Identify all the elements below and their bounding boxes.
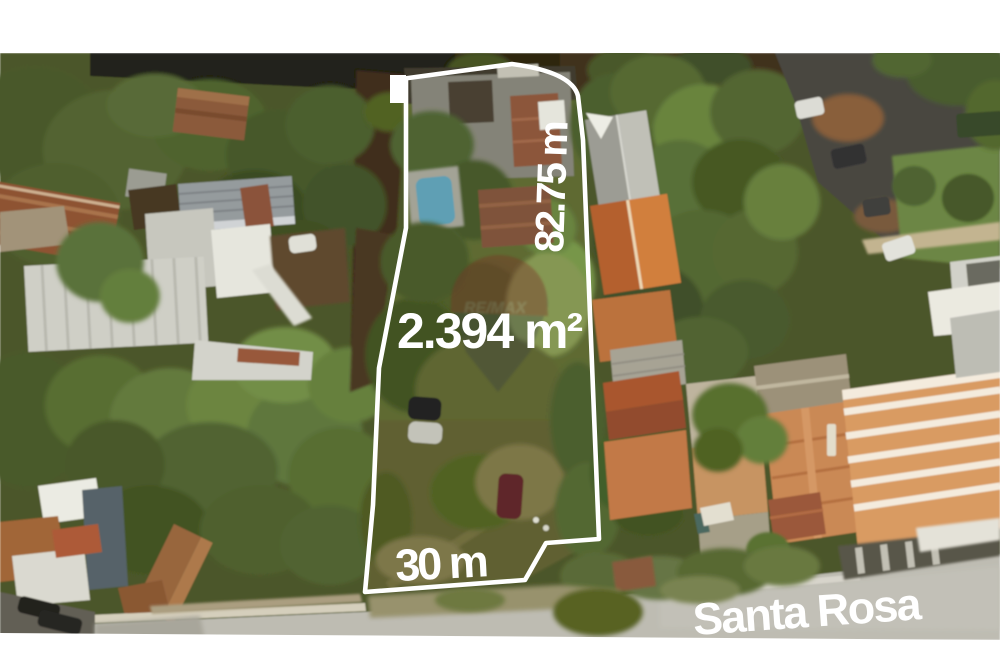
svg-text:2.394 m²: 2.394 m²	[397, 303, 582, 359]
svg-text:30 m: 30 m	[394, 535, 488, 591]
svg-text:82.75 m: 82.75 m	[526, 122, 577, 254]
